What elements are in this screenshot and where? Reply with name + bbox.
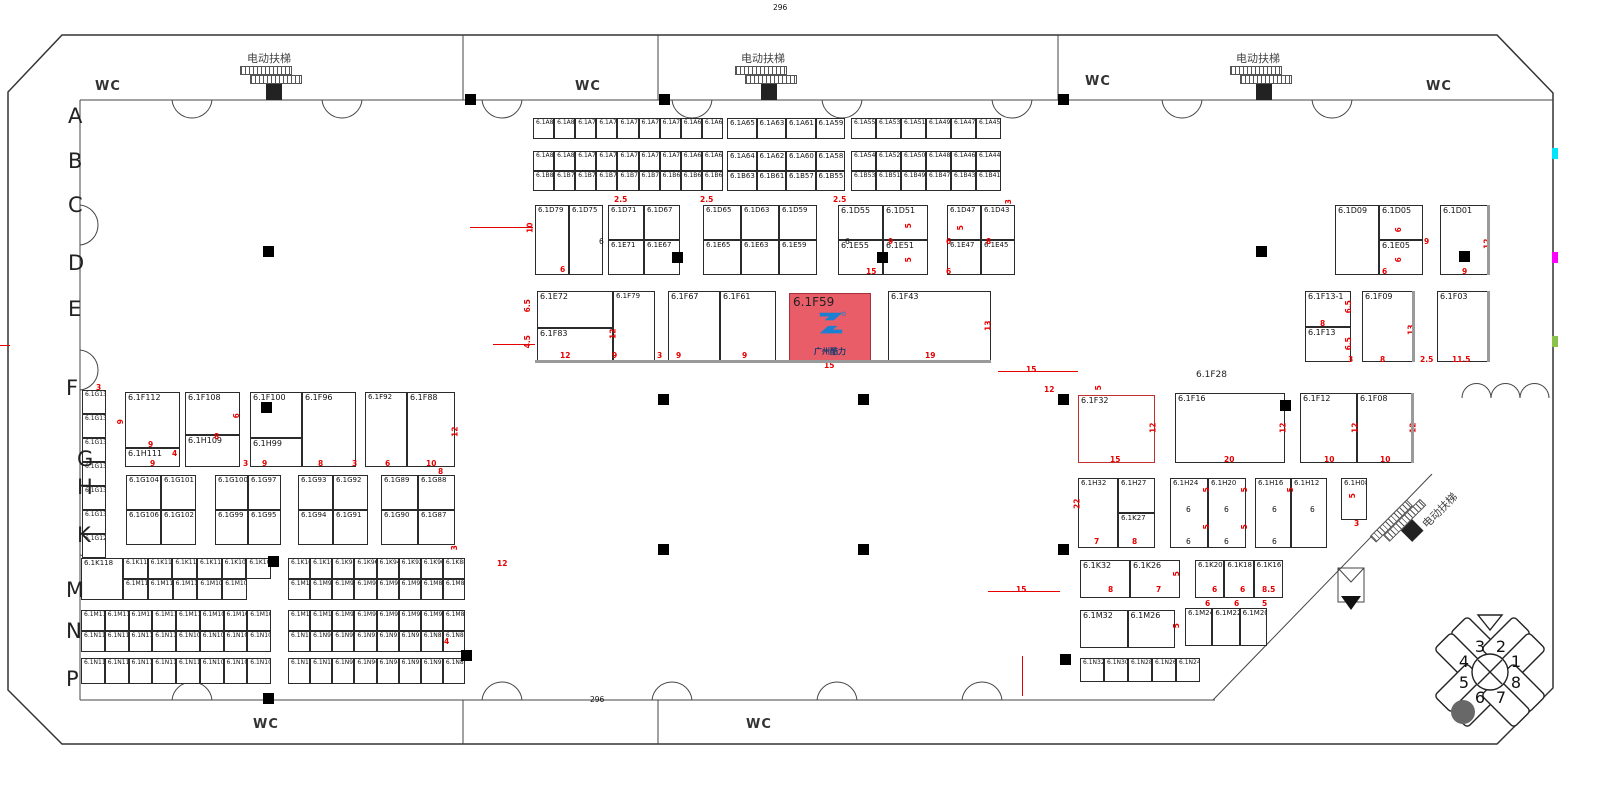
- dimension-label: 5: [1262, 600, 1267, 608]
- booth-6.1K94[interactable]: 6.1K94: [377, 558, 399, 579]
- booth-6.1M88[interactable]: 6.1M88: [443, 610, 465, 631]
- wc-label: WC: [746, 718, 772, 731]
- booth-6.1N94[interactable]: 6.1N94: [377, 658, 399, 684]
- dimension-label: 3: [1354, 520, 1359, 528]
- booth-6.1K26[interactable]: 6.1K26: [1130, 560, 1180, 598]
- booth-6.1M20[interactable]: 6.1M20: [1240, 608, 1267, 646]
- escalator-icon: [735, 66, 805, 90]
- dimension-label: 11.5: [1452, 356, 1471, 364]
- booth-6.1H12[interactable]: 6.1H12: [1291, 478, 1327, 548]
- dimension-label: 6: [1272, 506, 1277, 514]
- booth-6.1A47[interactable]: 6.1A47: [951, 118, 976, 139]
- dimension-label: 9: [612, 352, 617, 360]
- booth-6.1A59[interactable]: 6.1A59: [816, 118, 846, 139]
- dimension-label: 4.5: [524, 335, 532, 348]
- booth-6.1N28[interactable]: 6.1N28: [1128, 658, 1152, 682]
- dimension-label: 6: [1382, 268, 1387, 276]
- booth-6.1A58[interactable]: 6.1A58: [816, 151, 846, 171]
- booth-6.1N115[interactable]: 6.1N115: [105, 631, 129, 652]
- booth-6.1K92[interactable]: 6.1K92: [399, 558, 421, 579]
- booth-6.1K118[interactable]: 6.1K118: [81, 558, 123, 600]
- wall-segment: [1412, 291, 1415, 362]
- booth-6.1A73[interactable]: 6.1A73: [639, 118, 660, 139]
- escalator-label: 电动扶梯: [1236, 53, 1280, 64]
- wall-marker: [1552, 336, 1558, 347]
- booth-6.1N105[interactable]: 6.1N105: [224, 631, 248, 652]
- booth-6.1M112[interactable]: 6.1M112: [152, 610, 176, 631]
- booth-6.1K98[interactable]: 6.1K98: [332, 558, 354, 579]
- booth-6.1M107[interactable]: 6.1M107: [222, 579, 247, 600]
- booth-6.1F88[interactable]: 6.1F88: [407, 392, 455, 467]
- dimension-label: 15: [824, 362, 834, 370]
- dimension-label: 5: [1173, 571, 1181, 576]
- dimension-line: [470, 227, 533, 228]
- hall-selector-pinwheel[interactable]: 12345678: [1434, 615, 1545, 728]
- booth-6.1N101[interactable]: 6.1N101: [288, 631, 310, 652]
- booth-6.1G135[interactable]: 6.1G135: [82, 390, 106, 414]
- dimension-label: 12: [497, 560, 507, 568]
- booth-6.1K114[interactable]: 6.1K114: [148, 558, 173, 579]
- booth-6.1D43[interactable]: 6.1D43: [981, 205, 1015, 240]
- booth-6.1N90[interactable]: 6.1N90: [421, 658, 443, 684]
- structural-column: [658, 544, 669, 555]
- booth-6.1F83[interactable]: 6.1F83: [537, 328, 613, 362]
- dimension-label: 296: [590, 696, 604, 704]
- booth-6.1H99[interactable]: 6.1H99: [250, 438, 302, 467]
- hall-number-4[interactable]: 4: [1459, 652, 1469, 671]
- booth-6.1N24[interactable]: 6.1N24: [1176, 658, 1200, 682]
- booth-6.1B69[interactable]: 6.1B69: [660, 171, 681, 191]
- structural-column: [1060, 654, 1071, 665]
- booth-6.1D55[interactable]: 6.1D55: [838, 205, 883, 240]
- booth-6.1G88[interactable]: 6.1G88: [418, 475, 455, 510]
- booth-6.1N109[interactable]: 6.1N109: [176, 631, 200, 652]
- booth-6.1B61[interactable]: 6.1B61: [757, 171, 787, 191]
- booth-6.1N114[interactable]: 6.1N114: [129, 658, 153, 684]
- booth-6.1N92[interactable]: 6.1N92: [399, 658, 421, 684]
- escalator-label: 电动扶梯: [247, 53, 291, 64]
- row-letter-K: K: [77, 525, 91, 546]
- dimension-label: 3: [657, 352, 662, 360]
- dimension-label: 4: [444, 638, 449, 646]
- booth-6.1A63[interactable]: 6.1A63: [757, 118, 787, 139]
- wall-segment: [1487, 205, 1490, 275]
- booth-6.1N102[interactable]: 6.1N102: [288, 658, 310, 684]
- booth-6.1N117[interactable]: 6.1N117: [81, 631, 105, 652]
- booth-6.1N93[interactable]: 6.1N93: [377, 631, 399, 652]
- dimension-label: 8: [1380, 356, 1385, 364]
- dimension-label: 9: [742, 352, 747, 360]
- row-letter-H: H: [77, 477, 93, 498]
- booth-6.1A82[interactable]: 6.1A82: [533, 151, 554, 171]
- dimension-label: 5: [1241, 487, 1249, 492]
- highlight-booth-id: 6.1F59: [793, 295, 834, 309]
- booth-6.1A72[interactable]: 6.1A72: [639, 151, 660, 171]
- booth-6.1M92[interactable]: 6.1M92: [399, 610, 421, 631]
- structural-column: [1058, 394, 1069, 405]
- booth-6.1G95[interactable]: 6.1G95: [248, 510, 281, 545]
- wc-label: WC: [253, 718, 279, 731]
- dimension-label: 9: [1424, 238, 1429, 246]
- dimension-label: 6: [1224, 506, 1229, 514]
- exhibitor-logo-icon: [816, 310, 846, 338]
- dimension-label: 8: [1320, 320, 1325, 328]
- booth-6.1A64[interactable]: 6.1A64: [727, 151, 757, 171]
- booth-6.1F61[interactable]: 6.1F61: [720, 291, 776, 362]
- row-letter-N: N: [66, 621, 82, 642]
- booth-6.1N99[interactable]: 6.1N99: [310, 631, 332, 652]
- dimension-label: 5: [957, 225, 965, 230]
- dimension-label: 2.5: [833, 196, 846, 204]
- dimension-label: 3: [1005, 199, 1013, 204]
- booth-6.1F92[interactable]: 6.1F92: [365, 392, 407, 467]
- booth-6.1E47[interactable]: 6.1E47: [947, 240, 981, 275]
- booth-6.1N89[interactable]: 6.1N89: [421, 631, 443, 652]
- booth-6.1K102[interactable]: 6.1K102: [288, 558, 310, 579]
- dimension-label: 6.5: [1345, 337, 1353, 350]
- dimension-label: 6: [560, 266, 565, 274]
- booth-6.1A81[interactable]: 6.1A81: [554, 118, 575, 139]
- booth-6.1B65[interactable]: 6.1B65: [702, 171, 723, 191]
- dimension-label: 12: [1279, 423, 1287, 433]
- dimension-label: 12: [609, 329, 617, 339]
- booth-6.1N32[interactable]: 6.1N32: [1080, 658, 1104, 682]
- dimension-label: 2.5: [1420, 356, 1433, 364]
- booth-6.1M32[interactable]: 6.1M32: [1080, 610, 1128, 648]
- booth-6.1A83[interactable]: 6.1A83: [533, 118, 554, 139]
- booth-6.1A62[interactable]: 6.1A62: [757, 151, 787, 171]
- booth-6.1N103[interactable]: 6.1N103: [247, 631, 271, 652]
- booth-6.1B79[interactable]: 6.1B79: [554, 171, 575, 191]
- booth-6.1E59[interactable]: 6.1E59: [779, 240, 817, 275]
- booth-6.1N107[interactable]: 6.1N107: [200, 631, 224, 652]
- dimension-label: 6: [1186, 506, 1191, 514]
- booth-6.1K96[interactable]: 6.1K96: [354, 558, 376, 579]
- dimension-label: 6: [1310, 506, 1315, 514]
- dimension-label: 5: [1095, 385, 1103, 390]
- booth-6.1A74[interactable]: 6.1A74: [617, 151, 638, 171]
- booth-6.1M91[interactable]: 6.1M91: [399, 579, 421, 600]
- booth-6.1A75[interactable]: 6.1A75: [617, 118, 638, 139]
- booth-6.1A60[interactable]: 6.1A60: [786, 151, 816, 171]
- hall-number-2[interactable]: 2: [1496, 637, 1506, 656]
- booth-6.1A78[interactable]: 6.1A78: [575, 151, 596, 171]
- booth-6.1A71[interactable]: 6.1A71: [660, 118, 681, 139]
- booth-6.1G90[interactable]: 6.1G90: [381, 510, 418, 545]
- booth-6.1F03[interactable]: 6.1F03: [1437, 291, 1490, 362]
- booth-6.1N98[interactable]: 6.1N98: [332, 658, 354, 684]
- booth-6.1A66[interactable]: 6.1A66: [702, 151, 723, 171]
- booth-6.1G91[interactable]: 6.1G91: [333, 510, 368, 545]
- booth-6.1F96[interactable]: 6.1F96: [302, 392, 356, 467]
- booth-6.1N113[interactable]: 6.1N113: [129, 631, 153, 652]
- booth-6.1A80[interactable]: 6.1A80: [554, 151, 575, 171]
- booth-6.1M108[interactable]: 6.1M108: [200, 610, 224, 631]
- escalator-label: 电动扶梯: [741, 53, 785, 64]
- booth-6.1A79[interactable]: 6.1A79: [575, 118, 596, 139]
- booth-6.1A61[interactable]: 6.1A61: [786, 118, 816, 139]
- booth-6.1F100[interactable]: 6.1F100: [250, 392, 302, 438]
- dimension-label: 296: [773, 4, 787, 12]
- booth-6.1K32[interactable]: 6.1K32: [1080, 560, 1130, 598]
- booth-6.1M85[interactable]: 6.1M85: [443, 579, 465, 600]
- dimension-label: 13: [984, 321, 992, 331]
- booth-6.1K112[interactable]: 6.1K112: [172, 558, 197, 579]
- booth-6.1B57[interactable]: 6.1B57: [786, 171, 816, 191]
- booth-6.1H27[interactable]: 6.1H27: [1118, 478, 1155, 513]
- booth-6.1D71[interactable]: 6.1D71: [608, 205, 644, 240]
- booth-6.1M114[interactable]: 6.1M114: [129, 610, 153, 631]
- booth-6.1M94[interactable]: 6.1M94: [377, 610, 399, 631]
- booth-6.1B63[interactable]: 6.1B63: [727, 171, 757, 191]
- pinwheel-hub: [1472, 654, 1508, 690]
- booth-6.1M115[interactable]: 6.1M115: [123, 579, 148, 600]
- booth-6.1B77[interactable]: 6.1B77: [575, 171, 596, 191]
- booth-6.1A70[interactable]: 6.1A70: [660, 151, 681, 171]
- booth-6.1N30[interactable]: 6.1N30: [1104, 658, 1128, 682]
- booth-6.1M98[interactable]: 6.1M98: [332, 610, 354, 631]
- booth-6.1G100[interactable]: 6.1G100: [215, 475, 248, 510]
- hall-number-1[interactable]: 1: [1511, 652, 1521, 671]
- structural-column: [659, 94, 670, 105]
- highlighted-booth[interactable]: 6.1F59 广州酷力: [789, 293, 871, 362]
- wall-marker: [1552, 148, 1558, 159]
- booth-6.1D05[interactable]: 6.1D05: [1379, 205, 1423, 240]
- hall-number-8[interactable]: 8: [1511, 673, 1521, 692]
- booth-6.1K18[interactable]: 6.1K18: [1224, 560, 1253, 598]
- booth-6.1K116[interactable]: 6.1K116: [123, 558, 148, 579]
- booth-6.1A54[interactable]: 6.1A54: [851, 151, 876, 171]
- booth-6.1G102[interactable]: 6.1G102: [161, 510, 196, 545]
- wc-label: WC: [1426, 80, 1452, 93]
- booth-6.1B53[interactable]: 6.1B53: [851, 171, 876, 191]
- wc-label: WC: [1085, 75, 1111, 88]
- booth-6.1A67[interactable]: 6.1A67: [702, 118, 723, 139]
- booth-6.1F16[interactable]: 6.1F16: [1175, 393, 1285, 463]
- booth-6.1G106[interactable]: 6.1G106: [126, 510, 161, 545]
- booth-6.1M87[interactable]: 6.1M87: [421, 579, 443, 600]
- dimension-label: 8: [214, 433, 219, 441]
- booth-6.1G92[interactable]: 6.1G92: [333, 475, 368, 510]
- booth-6.1M26[interactable]: 6.1M26: [1128, 610, 1176, 648]
- booth-6.1N91[interactable]: 6.1N91: [399, 631, 421, 652]
- booth-6.1B75[interactable]: 6.1B75: [596, 171, 617, 191]
- booth-6.1M110[interactable]: 6.1M110: [176, 610, 200, 631]
- booth-6.1M111[interactable]: 6.1M111: [173, 579, 198, 600]
- booth-6.1B73[interactable]: 6.1B73: [617, 171, 638, 191]
- booth-6.1A76[interactable]: 6.1A76: [596, 151, 617, 171]
- booth-6.1E63[interactable]: 6.1E63: [741, 240, 779, 275]
- booth-6.1N104[interactable]: 6.1N104: [247, 658, 271, 684]
- wall-segment: [1487, 291, 1490, 362]
- booth-6.1M96[interactable]: 6.1M96: [354, 610, 376, 631]
- booth-6.1G99[interactable]: 6.1G99: [215, 510, 248, 545]
- structural-column: [658, 394, 669, 405]
- dimension-label: 5: [1241, 524, 1249, 529]
- booth-6.1D75[interactable]: 6.1D75: [569, 205, 603, 275]
- booth-6.1N97[interactable]: 6.1N97: [332, 631, 354, 652]
- booth-6.1M99[interactable]: 6.1M99: [310, 579, 332, 600]
- hall-number-5[interactable]: 5: [1459, 673, 1469, 692]
- hall-number-7[interactable]: 7: [1496, 688, 1506, 707]
- booth-6.1D65[interactable]: 6.1D65: [703, 205, 741, 240]
- booth-6.1M118[interactable]: 6.1M118: [81, 610, 105, 631]
- booth-6.1B41[interactable]: 6.1B41: [976, 171, 1001, 191]
- booth-6.1M24[interactable]: 6.1M24: [1185, 608, 1212, 646]
- exhibitor-name: 广州酷力: [790, 346, 870, 357]
- dimension-label: 8: [438, 468, 443, 476]
- booth-6.1K100[interactable]: 6.1K100: [310, 558, 332, 579]
- booth-6.1G94[interactable]: 6.1G94: [298, 510, 333, 545]
- booth-6.1N106[interactable]: 6.1N106: [224, 658, 248, 684]
- booth-6.1G87[interactable]: 6.1G87: [418, 510, 455, 545]
- row-letter-C: C: [68, 195, 83, 216]
- dimension-label: 6: [1395, 227, 1403, 232]
- booth-6.1A45[interactable]: 6.1A45: [976, 118, 1001, 139]
- dimension-label: 6: [1224, 538, 1229, 546]
- exhibition-floor-plan: 12345678 6.1F59 广州酷力 6.1A836.1A816.1A796…: [0, 0, 1600, 803]
- booth-6.1N100[interactable]: 6.1N100: [310, 658, 332, 684]
- booth-6.1M101[interactable]: 6.1M101: [288, 579, 310, 600]
- booth-6.1D63[interactable]: 6.1D63: [741, 205, 779, 240]
- booth-6.1A50[interactable]: 6.1A50: [901, 151, 926, 171]
- dimension-label: 5: [1287, 487, 1295, 492]
- dimension-line: [0, 345, 10, 346]
- row-letter-G: G: [77, 449, 93, 470]
- booth-6.1K88[interactable]: 6.1K88: [443, 558, 465, 579]
- booth-6.1D59[interactable]: 6.1D59: [779, 205, 817, 240]
- booth-6.1B55[interactable]: 6.1B55: [816, 171, 846, 191]
- booth-6.1A77[interactable]: 6.1A77: [596, 118, 617, 139]
- booth-6.1M93[interactable]: 6.1M93: [377, 579, 399, 600]
- booth-6.1A53[interactable]: 6.1A53: [876, 118, 901, 139]
- booth-6.1N111[interactable]: 6.1N111: [152, 631, 176, 652]
- booth-6.1N112[interactable]: 6.1N112: [152, 658, 176, 684]
- booth-6.1B51[interactable]: 6.1B51: [876, 171, 901, 191]
- booth-6.1N26[interactable]: 6.1N26: [1152, 658, 1176, 682]
- booth-6.1M109[interactable]: 6.1M109: [197, 579, 222, 600]
- booth-6.1M106[interactable]: 6.1M106: [224, 610, 248, 631]
- hall-number-3[interactable]: 3: [1475, 637, 1485, 656]
- booth-6.1M104[interactable]: 6.1M104: [247, 610, 271, 631]
- booth-6.1H109[interactable]: 6.1H109: [185, 435, 240, 467]
- booth-6.1G101[interactable]: 6.1G101: [161, 475, 196, 510]
- wc-label: WC: [95, 80, 121, 93]
- booth-6.1A55[interactable]: 6.1A55: [851, 118, 876, 139]
- booth-6.1F08[interactable]: 6.1F08: [1357, 393, 1414, 463]
- dimension-label: 3: [451, 545, 459, 550]
- booth-6.1D47[interactable]: 6.1D47: [947, 205, 981, 240]
- dimension-label: 6: [845, 238, 850, 246]
- booth-6.1M100[interactable]: 6.1M100: [310, 610, 332, 631]
- row-letter-F: F: [66, 378, 78, 399]
- dimension-label: 9: [148, 441, 153, 449]
- booth-6.1A44[interactable]: 6.1A44: [976, 151, 1001, 171]
- booth-6.1K108[interactable]: 6.1K108: [222, 558, 247, 579]
- booth-6.1K90[interactable]: 6.1K90: [421, 558, 443, 579]
- booth-6.1E72[interactable]: 6.1E72: [537, 291, 613, 328]
- booth-6.1B81[interactable]: 6.1B81: [533, 171, 554, 191]
- row-letter-D: D: [68, 253, 84, 274]
- booth-6.1N118[interactable]: 6.1N118: [81, 658, 105, 684]
- booth-6.1G97[interactable]: 6.1G97: [248, 475, 281, 510]
- dimension-label: 5: [1173, 623, 1181, 628]
- structural-column: [263, 246, 274, 257]
- booth-6.1D67[interactable]: 6.1D67: [644, 205, 680, 240]
- booth-6.1A51[interactable]: 6.1A51: [901, 118, 926, 139]
- booth-6.1A68[interactable]: 6.1A68: [681, 151, 702, 171]
- booth-6.1A46[interactable]: 6.1A46: [951, 151, 976, 171]
- booth-6.1N108[interactable]: 6.1N108: [200, 658, 224, 684]
- booth-6.1F79[interactable]: 6.1F79: [613, 291, 655, 362]
- dimension-label: 20: [1224, 456, 1234, 464]
- dimension-label: 15: [1026, 366, 1036, 374]
- booth-6.1E71[interactable]: 6.1E71: [608, 240, 644, 275]
- booth-6.1M90[interactable]: 6.1M90: [421, 610, 443, 631]
- booth-6.1M22[interactable]: 6.1M22: [1212, 608, 1239, 646]
- booth-6.1M116[interactable]: 6.1M116: [105, 610, 129, 631]
- hall-number-6[interactable]: 6: [1475, 688, 1485, 707]
- dimension-label: 5: [905, 223, 913, 228]
- dimension-label: 6.5: [524, 299, 532, 312]
- booth-6.1B67[interactable]: 6.1B67: [681, 171, 702, 191]
- booth-6.1B43[interactable]: 6.1B43: [951, 171, 976, 191]
- booth-6.1N96[interactable]: 6.1N96: [354, 658, 376, 684]
- booth-6.1N116[interactable]: 6.1N116: [105, 658, 129, 684]
- booth-6.1M95[interactable]: 6.1M95: [354, 579, 376, 600]
- dimension-label: 19: [925, 352, 935, 360]
- booth-6.1F32[interactable]: 6.1F32: [1078, 395, 1155, 463]
- dimension-label: 6.5: [1345, 300, 1353, 313]
- booth-6.1N95[interactable]: 6.1N95: [354, 631, 376, 652]
- booth-6.1B71[interactable]: 6.1B71: [639, 171, 660, 191]
- booth-6.1G104[interactable]: 6.1G104: [126, 475, 161, 510]
- dimension-label: 8: [1132, 538, 1137, 546]
- booth-6.1A52[interactable]: 6.1A52: [876, 151, 901, 171]
- booth-6.1M102[interactable]: 6.1M102: [288, 610, 310, 631]
- booth-6.1M113[interactable]: 6.1M113: [148, 579, 173, 600]
- booth-6.1B49[interactable]: 6.1B49: [901, 171, 926, 191]
- booth-6.1G134[interactable]: 6.1G134: [82, 414, 106, 438]
- dimension-label: 6: [1234, 600, 1239, 608]
- row-letter-B: B: [68, 151, 82, 172]
- wall-segment: [535, 360, 991, 363]
- booth-6.1F12[interactable]: 6.1F12: [1300, 393, 1357, 463]
- booth-6.1A49[interactable]: 6.1A49: [926, 118, 951, 139]
- dimension-label: 15: [866, 268, 876, 276]
- booth-6.1H08[interactable]: 6.1H08: [1341, 478, 1367, 520]
- booth-6.1E65[interactable]: 6.1E65: [703, 240, 741, 275]
- booth-6.1B47[interactable]: 6.1B47: [926, 171, 951, 191]
- dimension-label: 3: [243, 460, 248, 468]
- booth-6.1G89[interactable]: 6.1G89: [381, 475, 418, 510]
- booth-6.1F43[interactable]: 6.1F43: [888, 291, 991, 362]
- booth-6.1A48[interactable]: 6.1A48: [926, 151, 951, 171]
- booth-6.1G93[interactable]: 6.1G93: [298, 475, 333, 510]
- booth-6.1N110[interactable]: 6.1N110: [176, 658, 200, 684]
- dimension-label: 7: [1156, 586, 1161, 594]
- dimension-label: 3: [96, 384, 101, 392]
- booth-6.1A65[interactable]: 6.1A65: [727, 118, 757, 139]
- row-letter-E: E: [68, 299, 81, 320]
- booth-6.1K110[interactable]: 6.1K110: [197, 558, 222, 579]
- booth-6.1D09[interactable]: 6.1D09: [1335, 205, 1379, 275]
- booth-6.1M97[interactable]: 6.1M97: [332, 579, 354, 600]
- booth-6.1A69[interactable]: 6.1A69: [681, 118, 702, 139]
- booth-6.1K20[interactable]: 6.1K20: [1195, 560, 1224, 598]
- booth-6.1N88[interactable]: 6.1N88: [443, 658, 465, 684]
- structural-column: [268, 556, 279, 567]
